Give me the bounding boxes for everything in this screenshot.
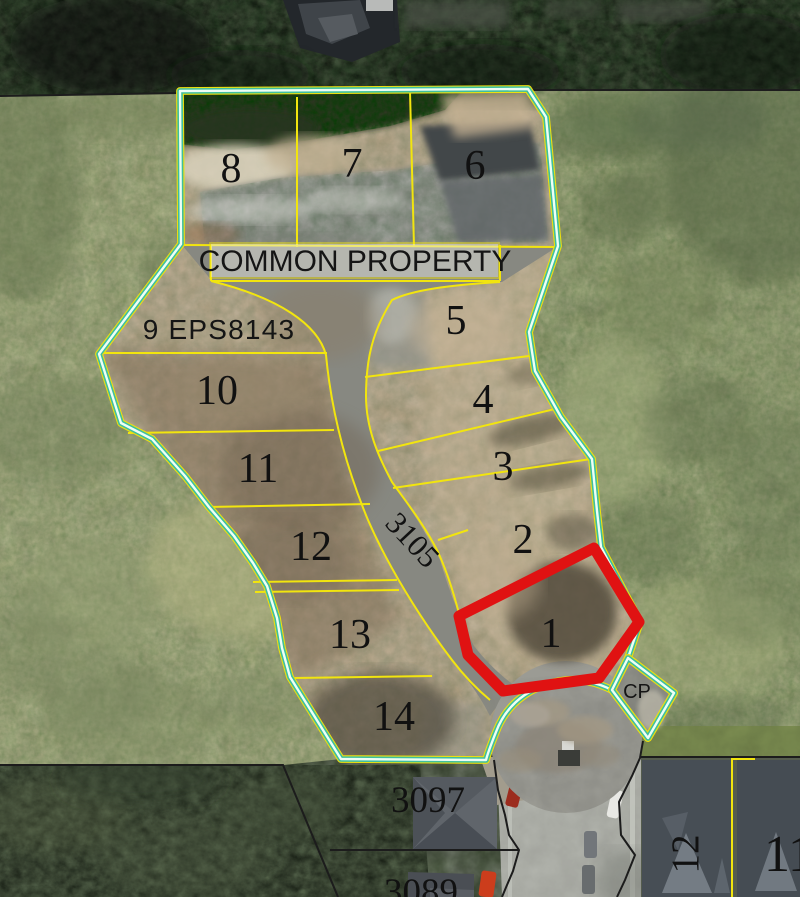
svg-text:4: 4 [473,377,494,423]
svg-text:11: 11 [764,826,800,883]
svg-text:5: 5 [446,298,467,344]
svg-text:CP: CP [623,681,651,703]
svg-text:2: 2 [513,517,534,563]
svg-text:12: 12 [290,524,332,570]
svg-text:3: 3 [493,444,514,490]
svg-text:12: 12 [664,835,707,874]
svg-text:7: 7 [342,141,363,187]
svg-text:8: 8 [221,146,242,192]
svg-text:6: 6 [465,143,486,189]
svg-text:10: 10 [196,368,238,414]
svg-text:11: 11 [238,446,278,492]
svg-text:COMMON PROPERTY: COMMON PROPERTY [199,245,512,278]
svg-text:13: 13 [329,612,371,658]
svg-text:3089: 3089 [384,872,458,897]
svg-text:14: 14 [373,694,415,740]
svg-text:9 EPS8143: 9 EPS8143 [143,314,295,345]
svg-text:1: 1 [541,611,562,657]
svg-text:3097: 3097 [391,780,465,821]
